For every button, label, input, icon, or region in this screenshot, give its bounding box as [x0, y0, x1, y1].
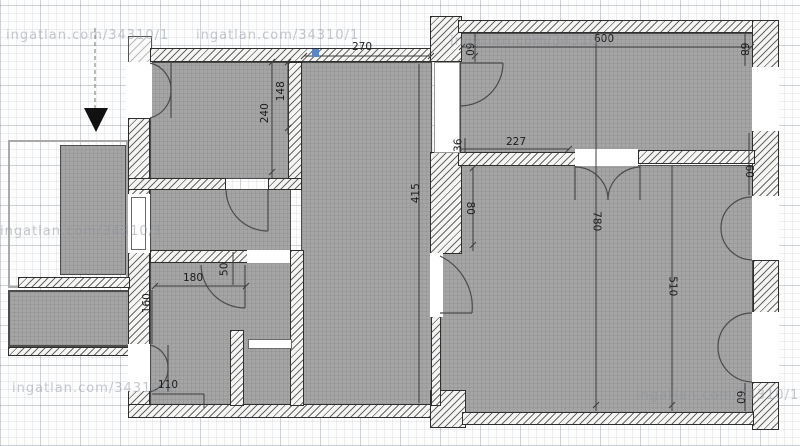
dim-label: 415	[411, 183, 422, 203]
plan-linework	[0, 0, 800, 446]
entrance-arrow-icon	[84, 108, 108, 132]
watermark: ingatlan.com/34310/1	[12, 381, 175, 396]
dim-label: 36	[453, 139, 464, 152]
watermark: ingatlan.com/34310/1	[6, 28, 169, 43]
dim-label: 240	[260, 103, 271, 123]
dim-label: 780	[591, 211, 602, 231]
dim-label: 68	[738, 43, 749, 56]
door-arcs	[150, 63, 752, 392]
watermark: ingatlan.com/34310/1	[196, 28, 359, 43]
floorplan-canvas: 270 148 240 415 80 60 600 68 36 227 60 7…	[0, 0, 800, 446]
dim-label: 270	[352, 42, 372, 53]
dim-label: 60	[743, 165, 754, 178]
dim-label: 160	[142, 293, 153, 313]
dim-label: 50	[219, 263, 230, 276]
north-marker	[312, 49, 319, 57]
watermark: ingatlan.com/34310/1	[636, 388, 799, 403]
dim-label: 180	[183, 273, 203, 284]
dim-label: 148	[276, 81, 287, 101]
dim-label: 227	[506, 137, 526, 148]
watermark: ingatlan.com/34310/1	[0, 224, 163, 239]
dim-label: 510	[667, 276, 678, 296]
watermark: ingatlan.com/34310/1	[450, 34, 613, 49]
dim-label: 80	[464, 202, 475, 215]
